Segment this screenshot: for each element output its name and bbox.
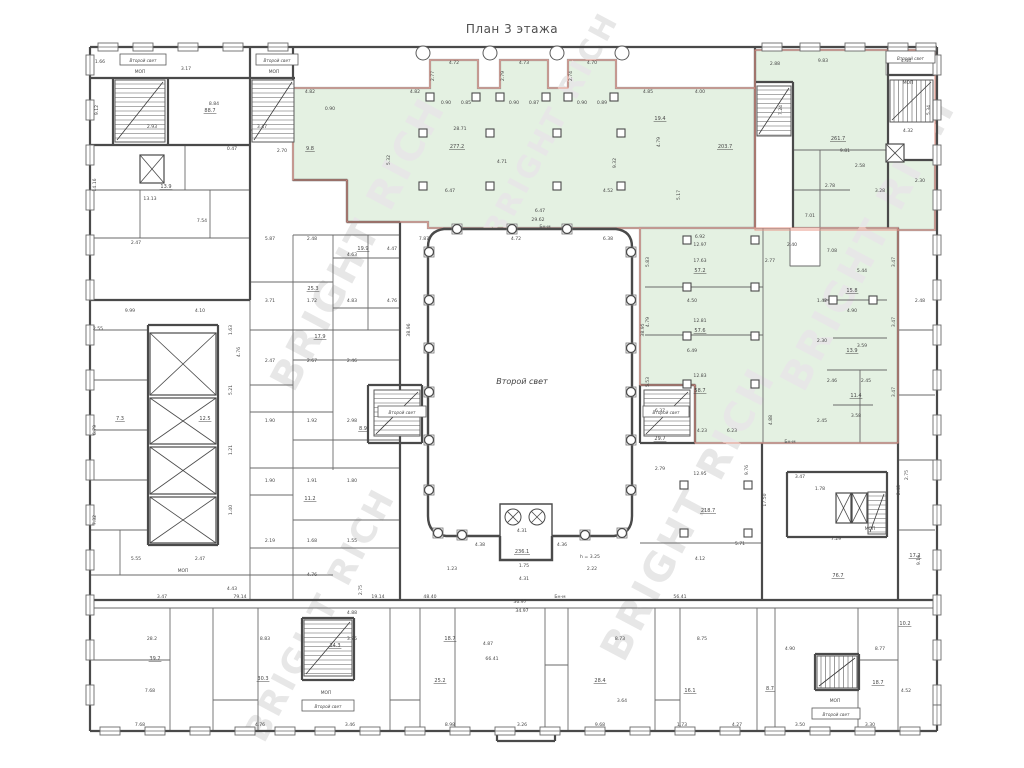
column-icon xyxy=(425,388,434,397)
column-icon xyxy=(581,531,590,540)
dimension-label: 3.75 xyxy=(347,636,357,642)
dimension-label: 2.93 xyxy=(147,124,157,130)
dimension-label: 1.21 xyxy=(228,445,234,455)
dimension-label: 2.79 xyxy=(500,71,506,81)
column-icon xyxy=(458,531,467,540)
dimension-label: 3.47 xyxy=(891,257,897,267)
column-icon xyxy=(425,248,434,257)
column-icon xyxy=(486,129,494,137)
dimension-label: 2.88 xyxy=(770,61,780,67)
room-area-label: 57.2 xyxy=(694,268,705,274)
mop-label: МОП xyxy=(865,526,876,532)
dimension-label: 4.38 xyxy=(475,542,485,548)
dimension-label: 9.76 xyxy=(744,465,750,475)
room-area-label: 34.3 xyxy=(329,643,340,649)
room-area-label: 7.3 xyxy=(116,416,124,422)
dimension-label: 3.58 xyxy=(851,413,861,419)
dimension-label: 4.79 xyxy=(656,137,662,147)
column-icon xyxy=(869,296,877,304)
room-area-label: 58.7 xyxy=(694,388,705,394)
column-icon xyxy=(627,296,636,305)
room-area-label: 57.6 xyxy=(694,328,705,334)
dimension-label: 2.67 xyxy=(307,358,317,364)
dimension-label: 5.87 xyxy=(265,236,275,242)
dimension-label: 79.14 xyxy=(233,594,246,600)
dimension-label: 3.71 xyxy=(265,298,275,304)
dimension-label: 2.74 xyxy=(568,71,574,81)
dimension-label: 1.40 xyxy=(228,505,234,515)
dimension-label: 2.58 xyxy=(855,163,865,169)
dimension-label: 8.98 xyxy=(445,722,455,728)
dimension-label: 3.46 xyxy=(345,722,355,728)
dimension-label: 4.85 xyxy=(643,89,653,95)
dimension-label: 1.78 xyxy=(815,486,825,492)
room-area-label: 39.2 xyxy=(149,656,160,662)
room-area-label: 18.7 xyxy=(444,636,455,642)
column-icon xyxy=(683,380,691,388)
dimension-label: 1.55 xyxy=(347,538,357,544)
dimension-label: 2.46 xyxy=(827,378,837,384)
dimension-label: 48.40 xyxy=(423,594,436,600)
dimension-label: 2.46 xyxy=(347,358,357,364)
dimension-label: 0.90 xyxy=(509,100,519,106)
column-icon xyxy=(486,182,494,190)
dimension-label: 3.64 xyxy=(617,698,627,704)
dimension-label: 6.23 xyxy=(727,428,737,434)
column-icon xyxy=(425,436,434,445)
dimension-label: 9.68 xyxy=(595,722,605,728)
dimension-label: 1.90 xyxy=(265,478,275,484)
dimension-label: 6.38 xyxy=(603,236,613,242)
dimension-label: 38.96 xyxy=(406,323,412,336)
dimension-label: 17.50 xyxy=(762,493,768,506)
dimension-label: 3.28 xyxy=(875,188,885,194)
column-icon xyxy=(617,129,625,137)
dimension-label: 9.16 xyxy=(916,555,922,565)
dimension-label: 4.27 xyxy=(732,722,742,728)
dimension-label: 4.70 xyxy=(587,60,597,66)
dimension-label: 4.71 xyxy=(497,159,507,165)
dimension-label: 4.76 xyxy=(236,347,242,357)
room-area-label: 13.9 xyxy=(160,184,171,190)
dimension-label: 2.48 xyxy=(896,485,902,495)
dimension-label: 4.72 xyxy=(511,236,521,242)
mop-label: МОП xyxy=(178,568,189,574)
room-area-label: 19.9 xyxy=(357,246,368,252)
column-icon xyxy=(680,481,688,489)
mop-label: МОП xyxy=(135,69,146,75)
dimension-label: 12.95 xyxy=(693,471,706,477)
dimension-label: 66.41 xyxy=(485,656,498,662)
dimension-label: 4.63 xyxy=(347,252,357,258)
dimension-label: 6.37 xyxy=(655,408,665,414)
dimension-label: Бн-м xyxy=(784,439,796,445)
dimension-label: 2.47 xyxy=(265,358,275,364)
grid-column-bubble xyxy=(416,46,430,60)
dimension-label: 9.99 xyxy=(125,308,135,314)
dimension-label: 2.75 xyxy=(358,585,364,595)
column-icon xyxy=(553,182,561,190)
dimension-label: 4.36 xyxy=(557,542,567,548)
dimension-label: 7.29 xyxy=(831,536,841,542)
dimension-label: 0.90 xyxy=(325,106,335,112)
column-icon xyxy=(751,236,759,244)
room-area-label: 88.7 xyxy=(204,108,215,114)
second-light-label: Второй свет xyxy=(264,58,291,63)
room-area-label: 17.9 xyxy=(314,334,325,340)
dimension-label: 3.47 xyxy=(795,474,805,480)
dimension-label: 4.76 xyxy=(255,722,265,728)
dimension-label: 4.10 xyxy=(195,308,205,314)
dimension-label: 9.83 xyxy=(818,58,828,64)
dimension-label: 8.83 xyxy=(260,636,270,642)
dimension-label: 2.22 xyxy=(587,566,597,572)
dimension-label: 5.21 xyxy=(228,385,234,395)
dimension-label: 1.63 xyxy=(228,325,234,335)
dimension-label: 5.17 xyxy=(676,190,682,200)
column-icon xyxy=(683,283,691,291)
room-area-label: 236.1 xyxy=(515,549,529,555)
dimension-label: 6.47 xyxy=(535,208,545,214)
dimension-label: 4.82 xyxy=(305,89,315,95)
dimension-label: 4.76 xyxy=(307,572,317,578)
dimension-label: 13.13 xyxy=(143,196,156,202)
dimension-label: 6.49 xyxy=(687,348,697,354)
dimension-label: Бн-м xyxy=(554,594,566,600)
column-icon xyxy=(627,486,636,495)
room-area-label: 18.7 xyxy=(872,680,883,686)
dimension-label: 9.32 xyxy=(612,158,618,168)
dimension-label: 0.89 xyxy=(597,100,607,106)
room-area-label: 11.2 xyxy=(304,496,315,502)
room-area-label: 76.7 xyxy=(832,573,843,579)
dimension-label: 0.90 xyxy=(577,100,587,106)
dimension-label: 19.14 xyxy=(371,594,384,600)
room-area-label: 203.7 xyxy=(718,144,732,150)
dimension-label: 0.90 xyxy=(441,100,451,106)
room-area-label: 25.2 xyxy=(434,678,445,684)
dimension-label: 3.47 xyxy=(157,594,167,600)
room-area-label: 29.7 xyxy=(654,436,665,442)
dimension-label: 2.40 xyxy=(787,242,797,248)
dimension-label: 1.66 xyxy=(95,59,105,65)
column-icon xyxy=(683,332,691,340)
dimension-label: 4.43 xyxy=(227,586,237,592)
dimension-label: 1.90 xyxy=(265,418,275,424)
column-icon xyxy=(496,93,504,101)
dimension-label: 2.19 xyxy=(265,538,275,544)
dimension-label: 4.72 xyxy=(449,60,459,66)
column-icon xyxy=(453,225,462,234)
dimension-label: 6.79 xyxy=(92,425,98,435)
column-icon xyxy=(434,529,443,538)
dimension-label: 2.48 xyxy=(307,236,317,242)
dimension-label: 4.88 xyxy=(768,415,774,425)
column-icon xyxy=(627,344,636,353)
room-area-label: 11.4 xyxy=(850,393,861,399)
dimension-label: 3.47 xyxy=(891,317,897,327)
room-area-label: 8.7 xyxy=(766,686,774,692)
column-icon xyxy=(419,129,427,137)
column-icon xyxy=(829,296,837,304)
dimension-label: 5.32 xyxy=(386,155,392,165)
dimension-label: 2.98 xyxy=(347,418,357,424)
mop-label: МОП xyxy=(830,698,841,704)
grid-column-bubble xyxy=(483,46,497,60)
floor-plan-drawing: BRIGHT RICHBRIGHT RICHBRIGHT RICHBRIGHT … xyxy=(0,0,1024,768)
dimension-label: 28.71 xyxy=(453,126,466,132)
mop-label: МОП xyxy=(903,80,914,86)
column-icon xyxy=(425,344,434,353)
dimension-label: 7.68 xyxy=(135,722,145,728)
dimension-label: 9.81 xyxy=(840,148,850,154)
column-icon xyxy=(751,332,759,340)
room-area-label: 277.2 xyxy=(450,144,464,150)
dimension-label: 8.73 xyxy=(615,636,625,642)
second-light-label: Второй свет xyxy=(823,712,850,717)
dimension-label: 7.32 xyxy=(92,515,98,525)
dimension-label: 1.72 xyxy=(307,298,317,304)
room-area-label: 8.9 xyxy=(359,426,367,432)
dimension-label: 5.53 xyxy=(645,377,651,387)
column-icon xyxy=(751,283,759,291)
dimension-label: 4.88 xyxy=(347,610,357,616)
dimension-label: 2.30 xyxy=(817,338,827,344)
dimension-label: 3.30 xyxy=(865,722,875,728)
dimension-label: 3.47 xyxy=(257,124,267,130)
dimension-label: 2.79 xyxy=(655,466,665,472)
dimension-label: 2.70 xyxy=(277,148,287,154)
dimension-label: 14.16 xyxy=(92,178,98,191)
dimension-label: 2.77 xyxy=(430,71,436,81)
column-icon xyxy=(508,225,517,234)
dimension-label: Бн-м xyxy=(539,224,551,230)
room-area-label: 12.5 xyxy=(199,416,210,422)
dimension-label: 7.54 xyxy=(197,218,207,224)
column-icon xyxy=(564,93,572,101)
dimension-label: 3.59 xyxy=(857,343,867,349)
dimension-label: 0.47 xyxy=(227,146,237,152)
room-area-label: 10.2 xyxy=(899,621,910,627)
column-icon xyxy=(744,481,752,489)
dimension-label: 9.12 xyxy=(94,105,100,115)
dimension-label: 4.52 xyxy=(603,188,613,194)
column-icon xyxy=(744,529,752,537)
dimension-label: 8.84 xyxy=(209,101,219,107)
dimension-label: 1.92 xyxy=(307,418,317,424)
column-icon xyxy=(425,296,434,305)
dimension-label: 1.68 xyxy=(307,538,317,544)
room-area-label: 15.8 xyxy=(846,288,857,294)
dimension-label: h = 3.25 xyxy=(580,554,600,560)
dimension-label: 2.75 xyxy=(904,470,910,480)
dimension-label: 12.97 xyxy=(693,242,706,248)
dimension-label: 4.31 xyxy=(517,528,527,534)
dimension-label: 4.31 xyxy=(519,576,529,582)
dimension-label: 5.55 xyxy=(131,556,141,562)
dimension-label: 1.80 xyxy=(347,478,357,484)
grid-column-bubble xyxy=(550,46,564,60)
column-icon xyxy=(563,225,572,234)
room-area-label: 30.3 xyxy=(257,676,268,682)
column-icon xyxy=(419,182,427,190)
room-area-label: 218.7 xyxy=(701,508,715,514)
dimension-label: 1.23 xyxy=(447,566,457,572)
dimension-label: 7.01 xyxy=(805,213,815,219)
second-light-label: Второй свет xyxy=(315,704,342,709)
dimension-label: 28.2 xyxy=(147,636,157,642)
dimension-label: 4.32 xyxy=(903,128,913,134)
dimension-label: 0.87 xyxy=(529,100,539,106)
column-icon xyxy=(751,380,759,388)
dimension-label: 2.45 xyxy=(861,378,871,384)
dimension-label: 1.42 xyxy=(817,298,827,304)
dimension-label: 3.50 xyxy=(795,722,805,728)
mop-label: МОП xyxy=(269,69,280,75)
dimension-label: 17.63 xyxy=(693,258,706,264)
dimension-label: 5.34 xyxy=(926,105,932,115)
dimension-label: 5.83 xyxy=(645,257,651,267)
dimension-label: 2.78 xyxy=(825,183,835,189)
dimension-label: 4.83 xyxy=(347,298,357,304)
dimension-label: 1.73 xyxy=(677,722,687,728)
dimension-label: 2.55 xyxy=(93,326,103,332)
column-icon xyxy=(553,129,561,137)
column-icon xyxy=(426,93,434,101)
dimension-label: 4.47 xyxy=(387,246,397,252)
room-area-label: 25.3 xyxy=(307,286,318,292)
dimension-label: 1.91 xyxy=(307,478,317,484)
column-icon xyxy=(627,248,636,257)
column-icon xyxy=(618,529,627,538)
dimension-label: 4.82 xyxy=(410,89,420,95)
room-area-label: 16.1 xyxy=(684,688,695,694)
dimension-label: 7.87 xyxy=(419,236,429,242)
second-light-label: Второй свет xyxy=(389,410,416,415)
room-area-label: 9.8 xyxy=(306,146,314,152)
dimension-label: 2.45 xyxy=(817,418,827,424)
column-icon xyxy=(472,93,480,101)
dimension-label: 4.12 xyxy=(695,556,705,562)
dimension-label: 5.44 xyxy=(857,268,867,274)
dimension-label: 34.97 xyxy=(515,608,528,614)
floor-plan-page: План 3 этажа BRIGHT RICHBRIGHT RICHBRIGH… xyxy=(0,0,1024,768)
dimension-label: 3.26 xyxy=(517,722,527,728)
dimension-label: 3.17 xyxy=(181,66,191,72)
grid-column-bubble xyxy=(615,46,629,60)
dimension-label: 7.68 xyxy=(145,688,155,694)
dimension-label: 0.85 xyxy=(461,100,471,106)
column-icon xyxy=(617,182,625,190)
column-icon xyxy=(627,436,636,445)
room-area-label: 261.7 xyxy=(831,136,845,142)
dimension-label: 6.47 xyxy=(445,188,455,194)
column-icon xyxy=(683,236,691,244)
dimension-label: 29.62 xyxy=(531,217,544,223)
atrium-caption: Второй свет xyxy=(496,377,548,386)
dimension-label: 5.71 xyxy=(735,541,745,547)
dimension-label: 4.23 xyxy=(697,428,707,434)
dimension-label: 4.00 xyxy=(695,89,705,95)
column-icon xyxy=(680,529,688,537)
column-icon xyxy=(610,93,618,101)
dimension-label: 2.48 xyxy=(915,298,925,304)
dimension-label: 4.44 xyxy=(901,58,911,64)
dimension-label: 4.52 xyxy=(901,688,911,694)
dimension-label: 3.47 xyxy=(891,387,897,397)
dimension-label: 7.08 xyxy=(827,248,837,254)
dimension-label: 12.81 xyxy=(693,318,706,324)
dimension-label: 7.24 xyxy=(778,105,784,115)
column-icon xyxy=(542,93,550,101)
column-icon xyxy=(425,486,434,495)
dimension-label: 36.97 xyxy=(513,599,526,605)
dimension-label: 4.73 xyxy=(519,60,529,66)
dimension-label: 4.79 xyxy=(645,317,651,327)
dimension-label: 4.90 xyxy=(785,646,795,652)
dimension-label: 4.90 xyxy=(847,308,857,314)
dimension-label: 2.47 xyxy=(131,240,141,246)
room-area-label: 28.4 xyxy=(594,678,605,684)
dimension-label: 4.87 xyxy=(483,641,493,647)
dimension-label: 1.75 xyxy=(519,563,529,569)
room-area-label: 19.4 xyxy=(654,116,665,122)
second-light-label: Второй свет xyxy=(130,58,157,63)
dimension-label: 2.77 xyxy=(765,258,775,264)
dimension-label: 4.50 xyxy=(687,298,697,304)
dimension-label: 8.77 xyxy=(875,646,885,652)
column-icon xyxy=(627,388,636,397)
dimension-label: 8.75 xyxy=(697,636,707,642)
mop-label: МОП xyxy=(321,690,332,696)
dimension-label: 2.47 xyxy=(195,556,205,562)
dimension-label: 4.76 xyxy=(387,298,397,304)
dimension-label: 12.83 xyxy=(693,373,706,379)
dimension-label: 2.30 xyxy=(915,178,925,184)
dimension-label: 6.92 xyxy=(695,234,705,240)
dimension-label: 56.41 xyxy=(673,594,686,600)
